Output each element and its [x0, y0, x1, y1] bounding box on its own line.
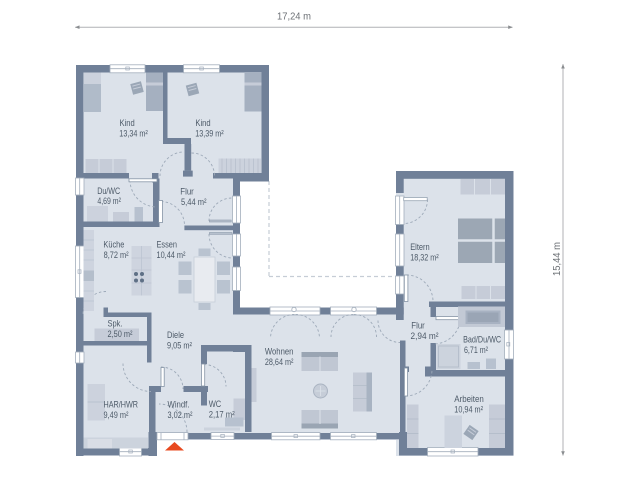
- svg-text:Kind: Kind: [120, 117, 135, 128]
- svg-text:13,34 m²: 13,34 m²: [119, 128, 148, 139]
- svg-text:10,44 m²: 10,44 m²: [157, 249, 186, 260]
- svg-text:Kind: Kind: [195, 117, 210, 128]
- svg-text:15,44 m: 15,44 m: [551, 242, 563, 276]
- svg-text:17,24 m: 17,24 m: [277, 11, 311, 23]
- svg-text:9,05 m²: 9,05 m²: [167, 340, 192, 351]
- svg-text:Eltern: Eltern: [410, 241, 430, 252]
- svg-text:13,39 m²: 13,39 m²: [195, 128, 224, 139]
- svg-text:3,02 m²: 3,02 m²: [168, 409, 193, 420]
- svg-text:Windf.: Windf.: [168, 399, 190, 410]
- svg-text:9,49 m²: 9,49 m²: [104, 409, 129, 420]
- svg-text:4,69 m²: 4,69 m²: [97, 195, 121, 206]
- svg-text:Bad/Du/WC: Bad/Du/WC: [463, 334, 501, 345]
- svg-text:Küche: Küche: [103, 239, 124, 250]
- svg-text:Flur: Flur: [411, 320, 425, 331]
- svg-text:2,50 m²: 2,50 m²: [108, 328, 133, 339]
- svg-text:2,17 m²: 2,17 m²: [209, 409, 235, 420]
- svg-text:6,71 m²: 6,71 m²: [464, 344, 488, 355]
- svg-text:WC: WC: [209, 398, 222, 409]
- svg-text:Essen: Essen: [157, 239, 178, 250]
- svg-text:2,94 m²: 2,94 m²: [411, 330, 439, 341]
- svg-text:Wohnen: Wohnen: [265, 346, 294, 357]
- svg-text:HAR/HWR: HAR/HWR: [104, 399, 139, 410]
- svg-text:Arbeiten: Arbeiten: [454, 393, 484, 404]
- svg-text:10,94 m²: 10,94 m²: [454, 404, 483, 415]
- svg-text:Spk.: Spk.: [108, 318, 123, 329]
- svg-text:8,72 m²: 8,72 m²: [104, 249, 129, 260]
- svg-text:Diele: Diele: [167, 329, 184, 340]
- svg-text:28,64 m²: 28,64 m²: [265, 356, 294, 367]
- svg-text:5,44 m²: 5,44 m²: [181, 196, 207, 207]
- svg-text:18,32 m²: 18,32 m²: [410, 252, 439, 263]
